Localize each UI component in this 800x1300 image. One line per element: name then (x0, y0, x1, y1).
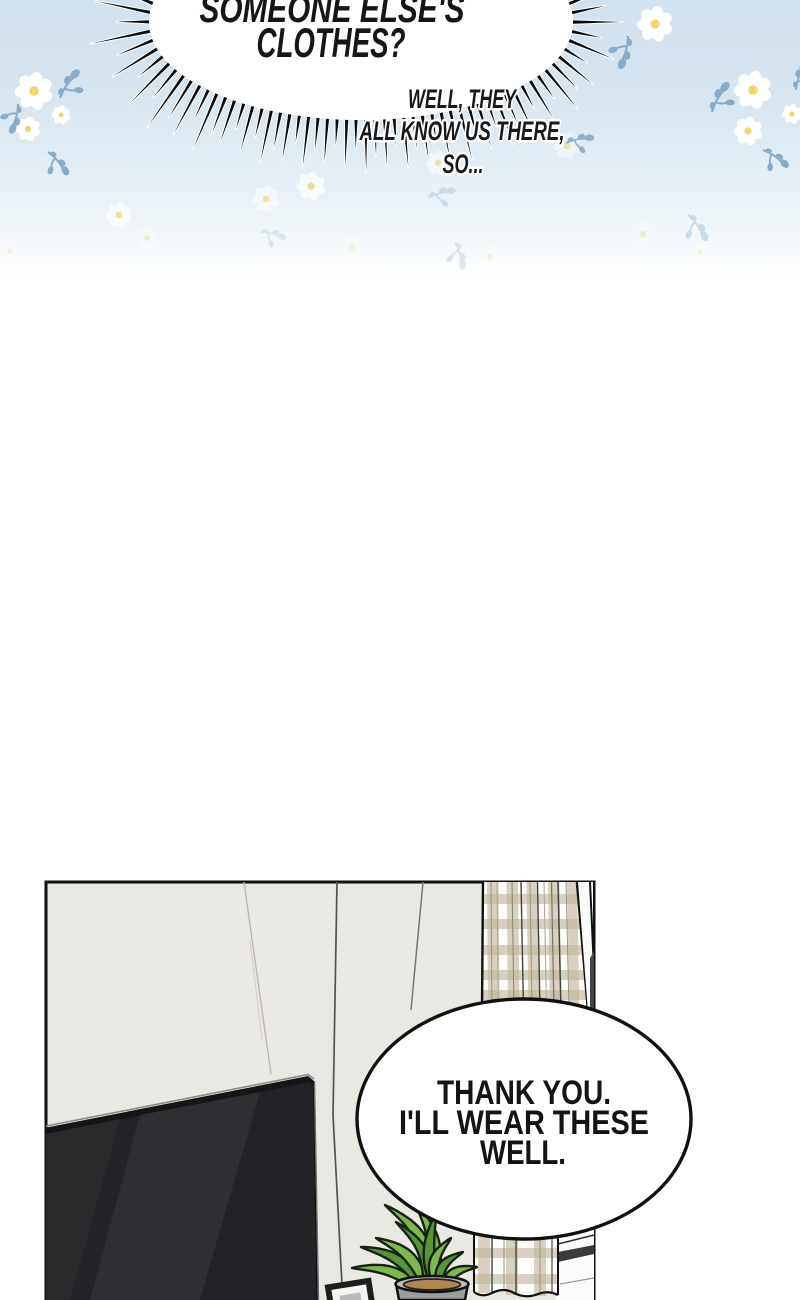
svg-text:WELL.: WELL. (480, 1134, 566, 1172)
svg-text:WELL, THEY: WELL, THEY (408, 84, 518, 114)
svg-text:ALL KNOW US THERE,: ALL KNOW US THERE, (359, 116, 565, 146)
svg-text:CLOTHES?: CLOTHES? (257, 19, 406, 66)
svg-text:SO...: SO... (443, 149, 484, 179)
